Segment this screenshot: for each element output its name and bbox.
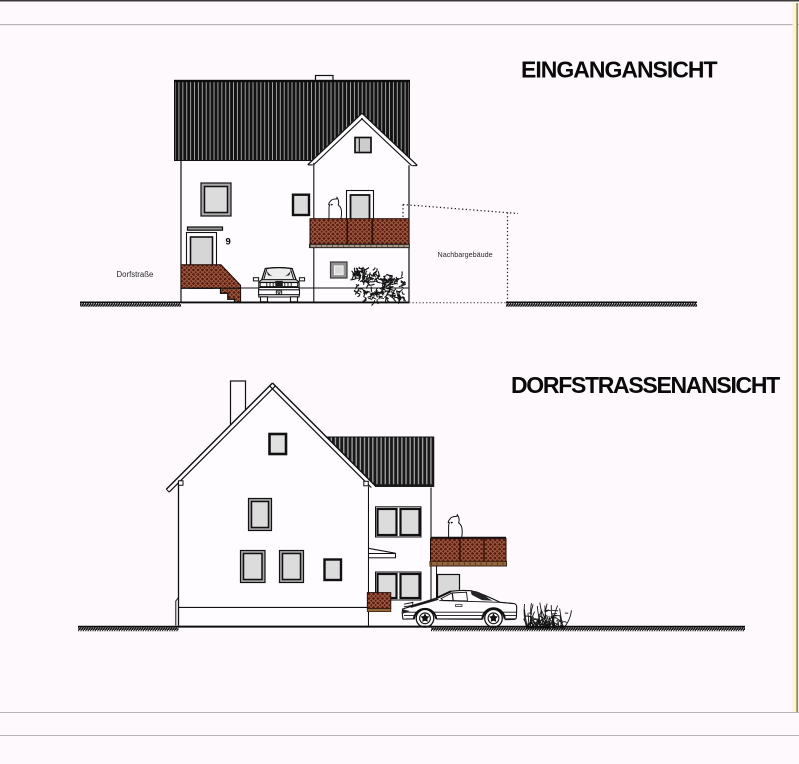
svg-text:DORFSTRASSENANSICHT: DORFSTRASSENANSICHT [511,372,780,398]
svg-text:Nachbargebäude: Nachbargebäude [438,250,493,259]
svg-text:9: 9 [226,237,231,248]
svg-text:EINGANGANSICHT: EINGANGANSICHT [521,57,718,83]
svg-text:Dorfstraße: Dorfstraße [117,270,154,279]
